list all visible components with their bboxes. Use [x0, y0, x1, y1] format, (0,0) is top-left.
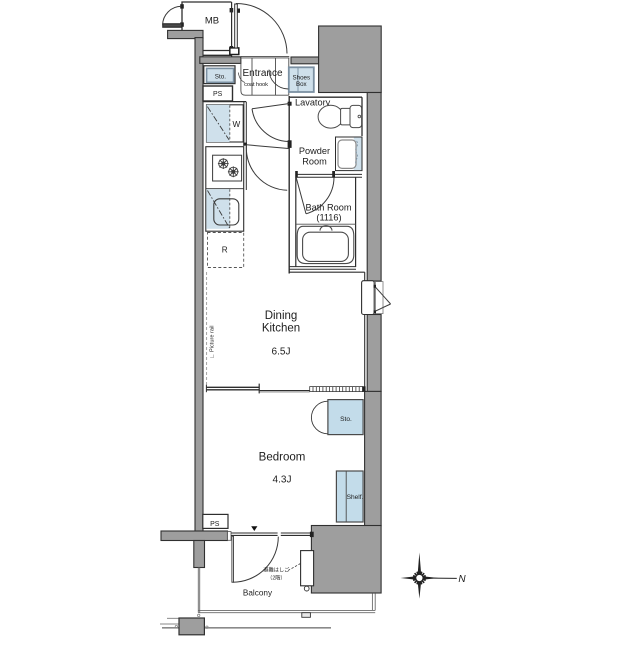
svg-text:4.3J: 4.3J: [273, 475, 292, 486]
svg-text:Kitchen: Kitchen: [262, 323, 300, 335]
svg-text:PS: PS: [210, 521, 220, 528]
svg-text:6.5J: 6.5J: [272, 347, 291, 358]
svg-text:R: R: [222, 246, 228, 255]
svg-text:PS: PS: [213, 91, 223, 98]
svg-text:Room: Room: [302, 157, 327, 167]
svg-text:Balcony: Balcony: [243, 589, 273, 598]
svg-text:（2階）: （2階）: [267, 574, 285, 582]
svg-text:Powder: Powder: [299, 146, 330, 156]
svg-text:Shelf.: Shelf.: [347, 494, 364, 501]
svg-text:Bedroom: Bedroom: [259, 452, 306, 464]
svg-text:N: N: [458, 574, 466, 585]
svg-text:Sto.: Sto.: [215, 74, 226, 81]
svg-text:Dining: Dining: [265, 310, 298, 322]
svg-text:W: W: [233, 120, 241, 129]
svg-text:Box: Box: [296, 81, 308, 88]
svg-text:Entrance: Entrance: [242, 68, 282, 79]
svg-text:(1116): (1116): [316, 213, 341, 223]
svg-text:∟ Picture rail: ∟ Picture rail: [210, 326, 216, 359]
svg-text:避難はしご: 避難はしご: [263, 566, 290, 574]
svg-text:Sto.: Sto.: [340, 416, 352, 423]
svg-text:Bath Room: Bath Room: [306, 202, 352, 212]
svg-text:MB: MB: [205, 16, 219, 27]
svg-text:coat hook: coat hook: [244, 82, 268, 88]
